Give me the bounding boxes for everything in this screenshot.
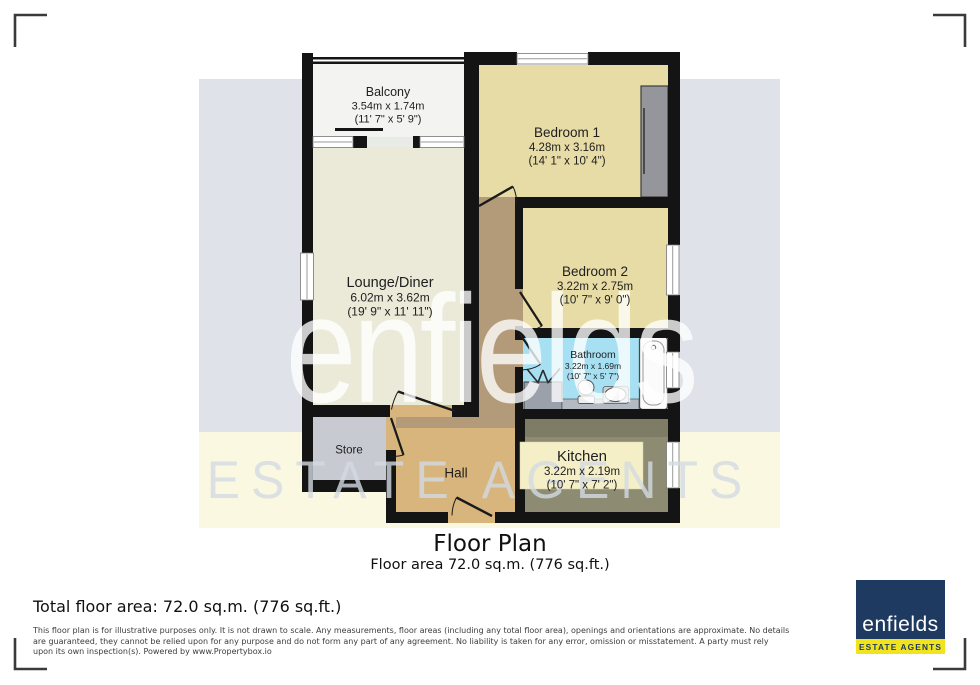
wall-bedroom1-bottom [516,197,680,208]
agency-logo-tagline: ESTATE AGENTS [859,642,942,652]
bedroom1-metric: 4.28m x 3.16m [529,142,605,154]
balcony-post-2 [413,136,420,148]
bedroom2-label: Bedroom 2 [562,264,628,279]
hall-label: Hall [444,466,467,481]
balcony-label: Balcony [366,85,411,99]
disclaimer-text: This floor plan is for illustrative purp… [33,626,790,658]
agency-logo: enfields [856,580,945,639]
watermark-tagline: ESTATE AGENTS [207,451,754,509]
wall-bottom-a [386,512,448,523]
lounge-metric: 6.02m x 3.62m [350,291,429,305]
total-floor-area: Total floor area: 72.0 sq.m. (776 sq.ft.… [33,597,341,616]
corner-mark-top-left [15,15,47,47]
kitchen-metric: 3.22m x 2.19m [544,466,620,478]
balcony-post-1 [353,136,367,148]
balcony-imperial: (11' 7" x 5' 9") [355,114,422,126]
floorplan-canvas: enfields ESTATE AGENTS Balcony 3.54m x 1… [0,0,980,685]
floorplan-page: enfields ESTATE AGENTS Balcony 3.54m x 1… [0,0,980,685]
wall-right-1 [668,52,680,245]
lounge-label: Lounge/Diner [346,275,433,291]
balcony-rail-bottom [313,62,464,65]
kitchen-imperial: (10' 7" x 7' 2") [547,480,618,492]
bedroom1-label: Bedroom 1 [534,125,600,140]
agency-logo-band: ESTATE AGENTS [856,639,945,654]
store-label: Store [335,445,363,457]
wall-left-upper [302,53,313,253]
wall-bottom-b [495,512,680,523]
corner-mark-top-right [933,15,965,47]
balcony-metric: 3.54m x 1.74m [352,101,425,113]
bathroom-imperial: (10' 7" x 5' 7") [567,371,619,381]
balcony-rail-top [313,57,464,60]
bedroom1-imperial: (14' 1" x 10' 4") [528,156,605,168]
watermark-text: enfields ESTATE AGENTS [207,263,754,509]
floorplan-subtitle: Floor area 72.0 sq.m. (776 sq.ft.) [240,557,740,573]
bedroom2-imperial: (10' 7" x 9' 0") [560,295,631,307]
bathroom-label: Bathroom [570,349,616,361]
agency-logo-brand: enfields [862,613,938,639]
balcony-door-opening [367,137,413,147]
kitchen-label: Kitchen [557,448,607,465]
floorplan-title: Floor Plan [290,531,690,557]
bedroom2-metric: 3.22m x 2.75m [557,281,633,293]
bathroom-metric: 3.22m x 1.69m [565,361,621,371]
wardrobe [641,86,668,197]
wall-top-right [588,52,680,65]
lounge-imperial: (19' 9" x 11' 11") [347,305,432,319]
